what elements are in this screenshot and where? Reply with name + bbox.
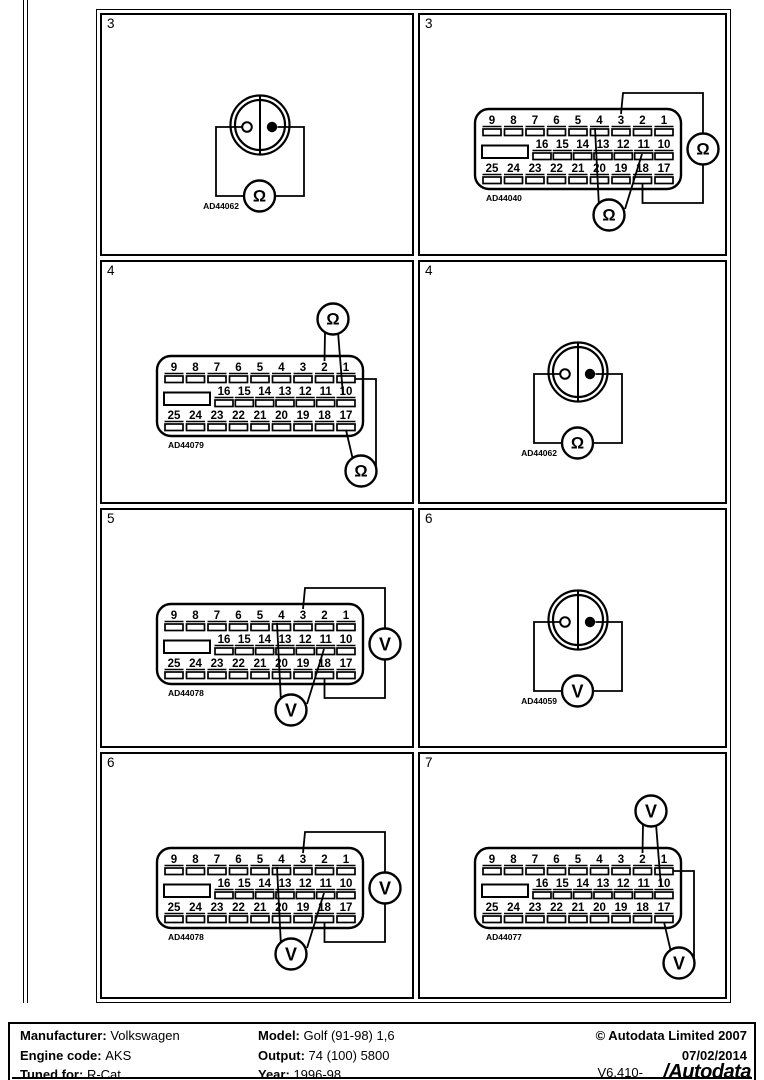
pin-18 <box>316 916 334 923</box>
pin-5 <box>251 868 269 875</box>
pin-10-number: 10 <box>658 878 671 890</box>
output-field: Output: 74 (100) 5800 <box>258 1048 390 1063</box>
pin-5 <box>569 129 587 136</box>
pin-4-number: 4 <box>278 362 285 374</box>
footer-row-1: Manufacturer: Volkswagen Model: Golf (91… <box>10 1028 754 1046</box>
model-field: Model: Golf (91-98) 1,6 <box>258 1028 395 1043</box>
pin-5-number: 5 <box>257 854 264 866</box>
round-connector-diagram: ΩAD44062 <box>102 15 412 254</box>
page-margin-line <box>23 0 28 1003</box>
pin-22-number: 22 <box>550 902 563 914</box>
pin-3 <box>294 624 312 631</box>
pin-7 <box>526 868 544 875</box>
pin-3 <box>294 868 312 875</box>
pin-5-number: 5 <box>575 115 582 127</box>
db25-connector-diagram: 9876543211615141312111025242322212019181… <box>102 754 412 997</box>
pin-15-number: 15 <box>238 634 251 646</box>
pin-22-number: 22 <box>232 410 245 422</box>
pin-22 <box>230 424 248 431</box>
pin-20 <box>591 177 609 184</box>
pin-24 <box>187 916 205 923</box>
pin-17 <box>337 672 355 679</box>
blank-slot <box>164 393 210 406</box>
pin-2-number: 2 <box>321 362 327 374</box>
pin-18 <box>316 672 334 679</box>
pin-22 <box>548 916 566 923</box>
connector-id-label: AD44078 <box>168 688 204 698</box>
voltmeter-symbol: V <box>379 879 391 899</box>
connector-id-label: AD44040 <box>486 193 522 203</box>
pin-3 <box>294 376 312 383</box>
pin-18 <box>634 177 652 184</box>
right-pin <box>267 122 277 132</box>
pin-17-number: 17 <box>658 902 671 914</box>
blank-slot <box>164 641 210 654</box>
pin-16-number: 16 <box>536 878 549 890</box>
pin-9 <box>165 624 183 631</box>
voltmeter-symbol: V <box>285 945 297 965</box>
ohmmeter-symbol: Ω <box>602 207 615 225</box>
pin-1-number: 1 <box>343 362 350 374</box>
pin-16-number: 16 <box>218 878 231 890</box>
pin-18-number: 18 <box>318 410 331 422</box>
pin-10 <box>655 153 673 160</box>
right-pin <box>585 369 595 379</box>
pin-23-number: 23 <box>529 902 542 914</box>
pin-4 <box>591 868 609 875</box>
pin-6 <box>230 624 248 631</box>
pin-24-number: 24 <box>189 658 202 670</box>
pin-16 <box>533 153 551 160</box>
pin-6-number: 6 <box>235 854 241 866</box>
pin-3-number: 3 <box>300 610 306 622</box>
pin-7-number: 7 <box>532 854 538 866</box>
pin-23 <box>208 424 226 431</box>
pin-1 <box>655 868 673 875</box>
pin-16-number: 16 <box>218 386 231 398</box>
blank-slot <box>164 885 210 898</box>
pin-10 <box>337 648 355 655</box>
pin-4-number: 4 <box>596 115 603 127</box>
connector-id-label: AD44079 <box>168 440 204 450</box>
pin-7-number: 7 <box>214 854 220 866</box>
pin-12-number: 12 <box>299 634 312 646</box>
pin-20 <box>273 916 291 923</box>
pin-8-number: 8 <box>192 854 199 866</box>
pin-13-number: 13 <box>279 634 292 646</box>
model-label: Model: <box>258 1028 300 1043</box>
pin-1 <box>655 129 673 136</box>
pin-15-number: 15 <box>556 878 569 890</box>
pin-21-number: 21 <box>572 163 585 175</box>
pin-12 <box>296 648 314 655</box>
pin-25-number: 25 <box>168 410 181 422</box>
pin-22-number: 22 <box>232 658 245 670</box>
pin-7-number: 7 <box>214 610 220 622</box>
pin-15 <box>553 153 571 160</box>
footer-info-box: Manufacturer: Volkswagen Model: Golf (91… <box>8 1022 756 1080</box>
pin-9 <box>483 129 501 136</box>
pin-9-number: 9 <box>489 854 495 866</box>
pin-12 <box>614 153 632 160</box>
test-wire <box>325 333 326 361</box>
pin-22-number: 22 <box>232 902 245 914</box>
pin-14 <box>574 153 592 160</box>
pin-13 <box>594 892 612 899</box>
pin-11-number: 11 <box>638 878 651 890</box>
pin-25-number: 25 <box>168 658 181 670</box>
pin-14-number: 14 <box>576 139 589 151</box>
pin-11 <box>317 400 335 407</box>
engine-code-label: Engine code: <box>20 1048 102 1063</box>
pin-16-number: 16 <box>218 634 231 646</box>
pin-13-number: 13 <box>597 878 610 890</box>
pin-19 <box>294 672 312 679</box>
pin-11 <box>317 648 335 655</box>
pin-5 <box>251 624 269 631</box>
ohmmeter-symbol: Ω <box>571 435 584 453</box>
pin-10-number: 10 <box>340 634 353 646</box>
left-pin <box>560 369 570 379</box>
pin-17 <box>655 916 673 923</box>
pin-9 <box>483 868 501 875</box>
pin-5-number: 5 <box>257 362 264 374</box>
pin-15 <box>553 892 571 899</box>
pin-6 <box>548 868 566 875</box>
pin-24 <box>505 916 523 923</box>
pin-8-number: 8 <box>192 610 199 622</box>
pin-2-number: 2 <box>321 854 327 866</box>
pin-14-number: 14 <box>258 386 271 398</box>
pin-17 <box>337 916 355 923</box>
pin-25-number: 25 <box>486 163 499 175</box>
ohmmeter-symbol: Ω <box>253 188 266 206</box>
pin-25 <box>165 672 183 679</box>
pin-21 <box>251 672 269 679</box>
pin-19-number: 19 <box>615 902 628 914</box>
pin-20-number: 20 <box>275 410 288 422</box>
pin-4-number: 4 <box>278 854 285 866</box>
pin-19 <box>612 177 630 184</box>
db25-connector-diagram: 9876543211615141312111025242322212019181… <box>420 754 725 997</box>
pin-15 <box>235 892 253 899</box>
pin-23-number: 23 <box>211 658 224 670</box>
manufacturer-value: Volkswagen <box>110 1028 179 1043</box>
pin-12 <box>296 400 314 407</box>
pin-11-number: 11 <box>320 386 333 398</box>
pin-2 <box>634 129 652 136</box>
pin-17-number: 17 <box>658 163 671 175</box>
pin-15-number: 15 <box>238 386 251 398</box>
pin-8 <box>505 868 523 875</box>
pin-2-number: 2 <box>639 115 645 127</box>
copyright-text: © Autodata Limited 2007 <box>596 1028 747 1043</box>
pin-21 <box>569 177 587 184</box>
pin-20-number: 20 <box>593 163 606 175</box>
pin-21-number: 21 <box>572 902 585 914</box>
pin-13 <box>276 400 294 407</box>
test-wire <box>643 825 644 853</box>
pin-10-number: 10 <box>340 386 353 398</box>
pin-16 <box>215 892 233 899</box>
pin-7-number: 7 <box>532 115 538 127</box>
pin-7 <box>208 624 226 631</box>
autodata-diagram-page: 3ΩAD440623987654321161514131211102524232… <box>0 0 764 1080</box>
blank-slot <box>482 885 528 898</box>
pin-25 <box>483 177 501 184</box>
pin-23-number: 23 <box>211 902 224 914</box>
pin-14 <box>574 892 592 899</box>
pin-24-number: 24 <box>189 410 202 422</box>
pin-8-number: 8 <box>510 854 517 866</box>
voltmeter-symbol: V <box>379 635 391 655</box>
diagram-panel-3: 4987654321161514131211102524232221201918… <box>100 260 414 504</box>
pin-13-number: 13 <box>597 139 610 151</box>
pin-20-number: 20 <box>593 902 606 914</box>
pin-6 <box>230 868 248 875</box>
pin-8 <box>187 624 205 631</box>
pin-6-number: 6 <box>235 362 241 374</box>
pin-6-number: 6 <box>553 115 559 127</box>
pin-3 <box>612 129 630 136</box>
pin-11-number: 11 <box>638 139 651 151</box>
pin-6-number: 6 <box>235 610 241 622</box>
db25-connector-diagram: 9876543211615141312111025242322212019181… <box>102 510 412 746</box>
pin-1-number: 1 <box>343 610 350 622</box>
pin-11-number: 11 <box>320 878 333 890</box>
pin-7 <box>208 376 226 383</box>
engine-code-field: Engine code: AKS <box>20 1048 131 1063</box>
ohmmeter-symbol: Ω <box>326 311 339 329</box>
pin-24-number: 24 <box>507 902 520 914</box>
pin-13-number: 13 <box>279 878 292 890</box>
pin-12-number: 12 <box>617 139 630 151</box>
pin-21 <box>251 916 269 923</box>
pin-23 <box>208 672 226 679</box>
pin-24 <box>187 424 205 431</box>
pin-10 <box>337 892 355 899</box>
voltmeter-symbol: V <box>673 954 685 974</box>
db25-connector-diagram: 9876543211615141312111025242322212019181… <box>102 262 412 502</box>
pin-17-number: 17 <box>340 902 353 914</box>
pin-20-number: 20 <box>275 902 288 914</box>
pin-12-number: 12 <box>299 878 312 890</box>
right-pin <box>585 617 595 627</box>
pin-2 <box>316 624 334 631</box>
pin-13-number: 13 <box>279 386 292 398</box>
pin-25 <box>165 916 183 923</box>
pin-25-number: 25 <box>168 902 181 914</box>
pin-19-number: 19 <box>615 163 628 175</box>
pin-4 <box>273 868 291 875</box>
blank-slot <box>482 146 528 159</box>
pin-17 <box>655 177 673 184</box>
pin-12-number: 12 <box>617 878 630 890</box>
pin-5 <box>251 376 269 383</box>
pin-19-number: 19 <box>297 410 310 422</box>
diagram-panel-8: 7987654321161514131211102524232221201918… <box>418 752 727 999</box>
pin-3-number: 3 <box>618 115 624 127</box>
pin-24-number: 24 <box>507 163 520 175</box>
pin-11 <box>635 153 653 160</box>
pin-11 <box>635 892 653 899</box>
pin-23-number: 23 <box>529 163 542 175</box>
output-label: Output: <box>258 1048 305 1063</box>
pin-17-number: 17 <box>340 410 353 422</box>
pin-3-number: 3 <box>300 362 306 374</box>
pin-1 <box>337 868 355 875</box>
pin-14-number: 14 <box>258 634 271 646</box>
pin-23 <box>526 916 544 923</box>
pin-22 <box>230 672 248 679</box>
pin-5 <box>569 868 587 875</box>
pin-17 <box>337 424 355 431</box>
engine-code-value: AKS <box>105 1048 131 1063</box>
pin-20 <box>273 672 291 679</box>
pin-9-number: 9 <box>171 854 177 866</box>
pin-10 <box>655 892 673 899</box>
pin-22 <box>548 177 566 184</box>
diagram-panel-1: 3ΩAD44062 <box>100 13 414 256</box>
pin-8 <box>187 376 205 383</box>
pin-24 <box>187 672 205 679</box>
pin-3 <box>612 868 630 875</box>
pin-5-number: 5 <box>257 610 264 622</box>
pin-14-number: 14 <box>576 878 589 890</box>
connector-id-label: AD44062 <box>521 448 557 458</box>
pin-23 <box>208 916 226 923</box>
pin-9 <box>165 376 183 383</box>
pin-20 <box>273 424 291 431</box>
pin-17-number: 17 <box>340 658 353 670</box>
pin-25 <box>165 424 183 431</box>
pin-21-number: 21 <box>254 658 267 670</box>
pin-5-number: 5 <box>575 854 582 866</box>
pin-10-number: 10 <box>340 878 353 890</box>
pin-6-number: 6 <box>553 854 559 866</box>
pin-14-number: 14 <box>258 878 271 890</box>
pin-8 <box>505 129 523 136</box>
left-pin <box>242 122 252 132</box>
pin-10 <box>337 400 355 407</box>
pin-19 <box>294 916 312 923</box>
pin-12-number: 12 <box>299 386 312 398</box>
pin-7-number: 7 <box>214 362 220 374</box>
pin-1-number: 1 <box>661 854 668 866</box>
pin-16 <box>215 648 233 655</box>
pin-21-number: 21 <box>254 902 267 914</box>
pin-4 <box>273 376 291 383</box>
pin-6 <box>548 129 566 136</box>
pin-1 <box>337 376 355 383</box>
pin-15 <box>235 400 253 407</box>
autodata-logo: /Autodata <box>663 1061 751 1080</box>
pin-2-number: 2 <box>639 854 645 866</box>
pin-21 <box>569 916 587 923</box>
pin-18-number: 18 <box>636 902 649 914</box>
ohmmeter-symbol: Ω <box>696 141 709 159</box>
voltmeter-symbol: V <box>285 701 297 721</box>
pin-3-number: 3 <box>300 854 306 866</box>
pin-2 <box>316 868 334 875</box>
pin-16 <box>215 400 233 407</box>
pin-23 <box>526 177 544 184</box>
pin-1-number: 1 <box>343 854 350 866</box>
pin-2 <box>316 376 334 383</box>
pin-14 <box>256 400 274 407</box>
round-connector-diagram: ΩAD44062 <box>420 262 725 502</box>
version-text: V6.410- <box>597 1065 643 1080</box>
pin-19-number: 19 <box>297 658 310 670</box>
pin-25-number: 25 <box>486 902 499 914</box>
pin-22 <box>230 916 248 923</box>
pin-3-number: 3 <box>618 854 624 866</box>
pin-11-number: 11 <box>320 634 333 646</box>
pin-10-number: 10 <box>658 139 671 151</box>
ohmmeter-symbol: Ω <box>354 463 367 481</box>
pin-24-number: 24 <box>189 902 202 914</box>
pin-4 <box>273 624 291 631</box>
pin-20-number: 20 <box>275 658 288 670</box>
connector-id-label: AD44062 <box>203 201 239 211</box>
pin-14 <box>256 648 274 655</box>
pin-15-number: 15 <box>238 878 251 890</box>
pin-12 <box>614 892 632 899</box>
pin-21 <box>251 424 269 431</box>
pin-2-number: 2 <box>321 610 327 622</box>
pin-18 <box>316 424 334 431</box>
voltmeter-symbol: V <box>645 802 657 822</box>
output-value: 74 (100) 5800 <box>309 1048 390 1063</box>
pin-8-number: 8 <box>192 362 199 374</box>
diagram-panel-7: 6987654321161514131211102524232221201918… <box>100 752 414 999</box>
pin-22-number: 22 <box>550 163 563 175</box>
pin-19-number: 19 <box>297 902 310 914</box>
diagram-panel-2: 3987654321161514131211102524232221201918… <box>418 13 727 256</box>
pin-9-number: 9 <box>171 610 177 622</box>
pin-18 <box>634 916 652 923</box>
pin-11 <box>317 892 335 899</box>
pin-2 <box>634 868 652 875</box>
pin-12 <box>296 892 314 899</box>
pin-7 <box>208 868 226 875</box>
diagram-panel-6: 6VAD44059 <box>418 508 727 748</box>
diagram-panel-4: 4ΩAD44062 <box>418 260 727 504</box>
pin-9-number: 9 <box>489 115 495 127</box>
pin-14 <box>256 892 274 899</box>
connector-id-label: AD44077 <box>486 932 522 942</box>
pin-7 <box>526 129 544 136</box>
diagram-panel-5: 5987654321161514131211102524232221201918… <box>100 508 414 748</box>
manufacturer-field: Manufacturer: Volkswagen <box>20 1028 180 1043</box>
pin-15-number: 15 <box>556 139 569 151</box>
pin-9-number: 9 <box>171 362 177 374</box>
pin-9 <box>165 868 183 875</box>
pin-19 <box>294 424 312 431</box>
manufacturer-label: Manufacturer: <box>20 1028 107 1043</box>
footer-row-2: Engine code: AKS Output: 74 (100) 5800 0… <box>10 1048 754 1066</box>
model-value: Golf (91-98) 1,6 <box>304 1028 395 1043</box>
voltmeter-symbol: V <box>571 682 583 702</box>
pin-16-number: 16 <box>536 139 549 151</box>
pin-1-number: 1 <box>661 115 668 127</box>
pin-8 <box>187 868 205 875</box>
pin-15 <box>235 648 253 655</box>
pin-19 <box>612 916 630 923</box>
pin-25 <box>483 916 501 923</box>
round-connector-diagram: VAD44059 <box>420 510 725 746</box>
pin-23-number: 23 <box>211 410 224 422</box>
